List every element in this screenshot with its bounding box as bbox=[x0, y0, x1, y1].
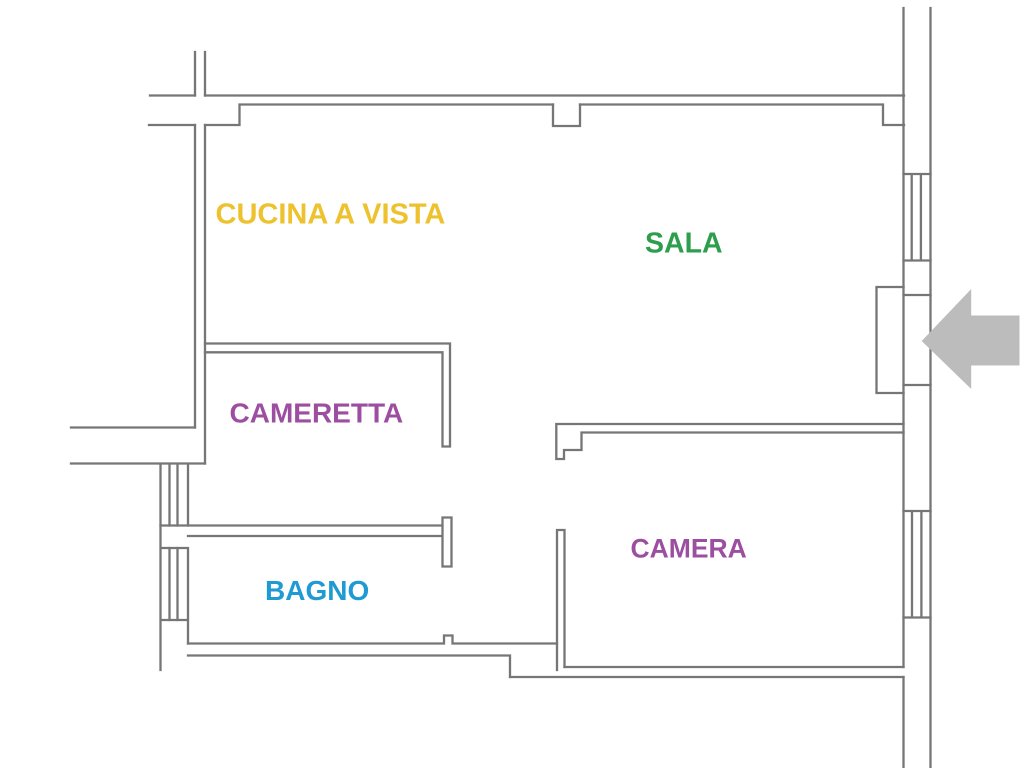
svg-text:BAGNO: BAGNO bbox=[265, 575, 369, 606]
svg-text:CAMERA: CAMERA bbox=[631, 534, 747, 564]
svg-text:CUCINA A VISTA: CUCINA A VISTA bbox=[216, 199, 446, 231]
svg-text:SALA: SALA bbox=[645, 228, 723, 260]
svg-text:CAMERETTA: CAMERETTA bbox=[230, 398, 404, 429]
